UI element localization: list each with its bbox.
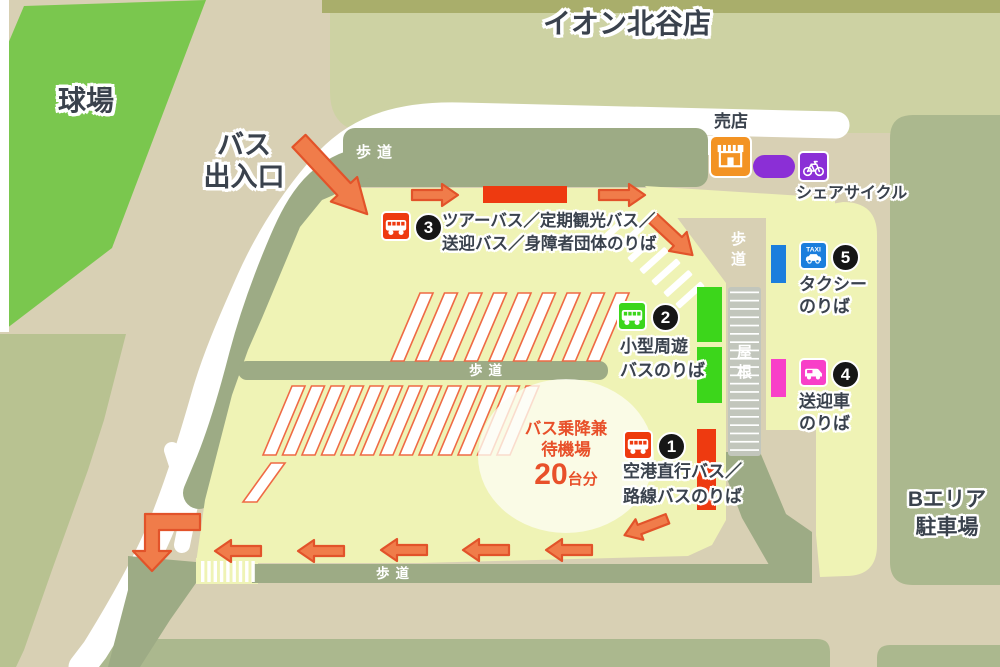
sidewalk-label-middle: 歩道 xyxy=(469,363,508,379)
taxi-icon: TAXI xyxy=(801,243,826,268)
stop4-shuttle-car-icon xyxy=(799,358,828,387)
bottom-block-left xyxy=(96,639,830,667)
stadium-label: 球場 xyxy=(58,84,114,118)
left-edge-strip xyxy=(0,0,9,332)
sidewalk-label-top: 歩道 xyxy=(356,144,398,162)
stop5-taxi-icon: TAXI xyxy=(799,241,828,270)
shop-icon xyxy=(709,135,752,178)
bus-terminal-map: イオン北谷店 球場 バス 出入口 歩道 歩道 歩道 歩道 屋根 売店 シェアサイ… xyxy=(0,0,1000,667)
stop1-number: 1 xyxy=(657,432,686,461)
stop3-label: ツアーバス／定期観光バス／ 送迎バス／身障者団体のりば xyxy=(442,210,657,256)
waiting-count: 20 xyxy=(534,458,567,491)
sidewalk-middle-strip xyxy=(238,361,608,380)
waiting-unit: 台分 xyxy=(568,471,598,488)
storefront-icon xyxy=(711,137,750,176)
sidewalk-label-right: 歩道 xyxy=(728,231,746,271)
sidewalk-label-bottom: 歩道 xyxy=(376,566,415,582)
stop4-number: 4 xyxy=(831,360,860,389)
bicycle-icon xyxy=(800,153,827,180)
bottom-block-right xyxy=(877,645,1000,667)
bus-icon xyxy=(383,213,409,239)
page-title: イオン北谷店 xyxy=(543,7,711,41)
stop5-number: 5 xyxy=(831,243,860,272)
shop-label: 売店 xyxy=(707,112,755,132)
map-graphics xyxy=(0,0,1000,667)
stop3-bus-icon xyxy=(381,211,411,241)
stop2-label: 小型周遊 バスのりば xyxy=(620,335,705,383)
stop5-label: タクシー のりば xyxy=(799,274,867,318)
bus-gate-label: バス 出入口 xyxy=(180,129,308,194)
share-cycle-icon xyxy=(798,151,829,182)
stop2-bus-icon xyxy=(617,301,647,331)
b-area-label: Bエリア 駐車場 xyxy=(893,486,1000,542)
roof-label: 屋根 xyxy=(734,344,752,384)
cycle-parking-pill xyxy=(753,155,795,178)
share-cycle-label: シェアサイクル xyxy=(796,184,907,203)
shuttle-car-icon xyxy=(801,360,826,385)
stop3-number: 3 xyxy=(414,213,443,242)
stop4-label: 送迎車 のりば xyxy=(799,391,850,435)
bus-icon xyxy=(619,303,645,329)
stop2-number: 2 xyxy=(651,303,680,332)
sidewalk-bottom-strip xyxy=(252,564,812,583)
taxi-sign-text: TAXI xyxy=(806,246,821,253)
crosswalk-bottom xyxy=(201,561,255,582)
waiting-area-label: バス乗降兼 待機場 20台分 xyxy=(476,419,656,490)
